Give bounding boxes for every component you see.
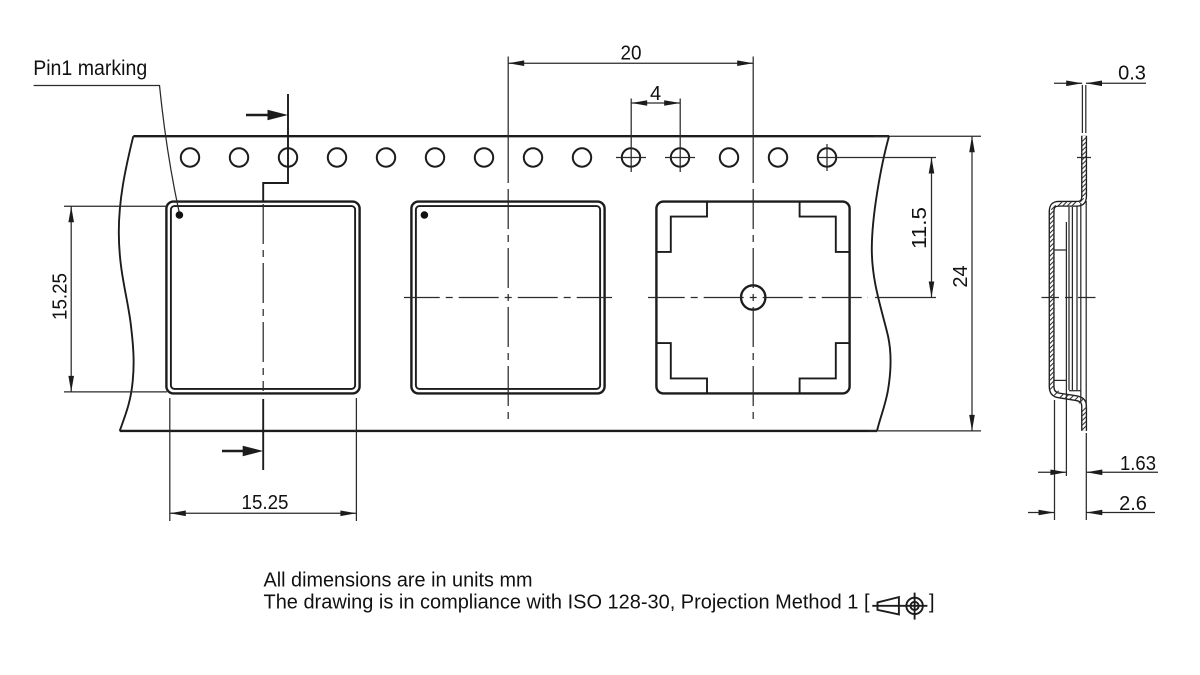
svg-text:15.25: 15.25 bbox=[50, 273, 72, 320]
svg-text:1.63: 1.63 bbox=[1120, 453, 1156, 475]
svg-text:4: 4 bbox=[650, 83, 661, 105]
svg-text:11.5: 11.5 bbox=[909, 207, 931, 249]
svg-text:20: 20 bbox=[621, 43, 642, 65]
svg-text:The drawing is in compliance w: The drawing is in compliance with ISO 12… bbox=[264, 592, 870, 614]
svg-text:All dimensions are in units mm: All dimensions are in units mm bbox=[264, 570, 533, 592]
svg-text:]: ] bbox=[929, 592, 935, 614]
svg-text:24: 24 bbox=[950, 265, 972, 287]
svg-text:15.25: 15.25 bbox=[242, 492, 289, 514]
svg-text:Pin1 marking: Pin1 marking bbox=[33, 57, 147, 80]
svg-text:0.3: 0.3 bbox=[1118, 62, 1146, 84]
svg-text:2.6: 2.6 bbox=[1119, 493, 1147, 515]
